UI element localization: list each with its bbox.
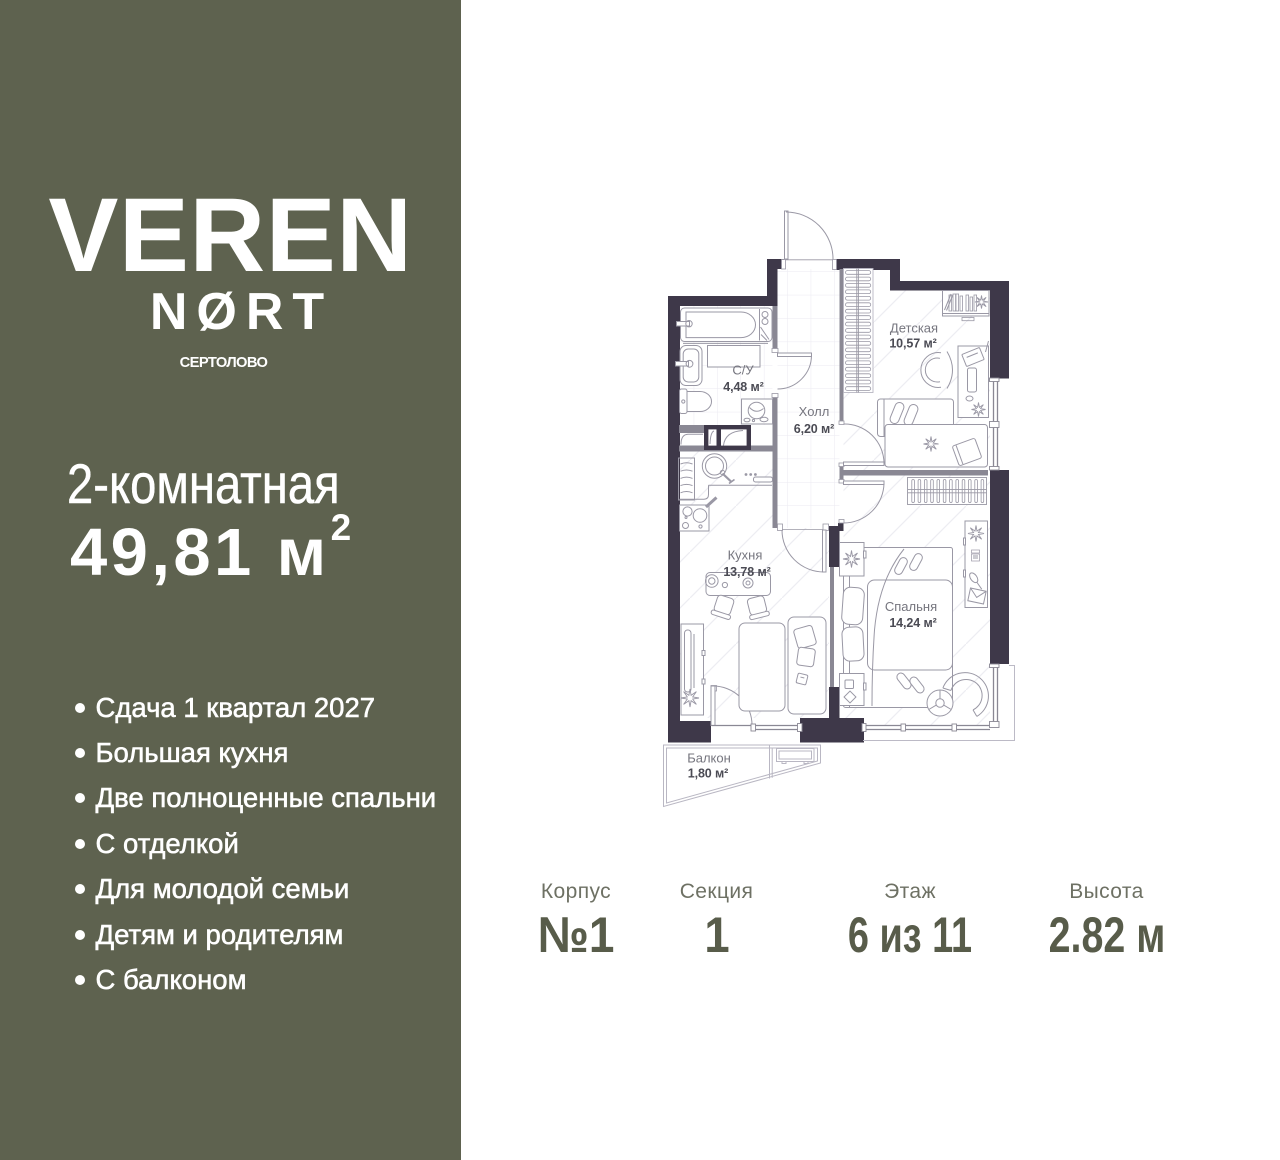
svg-text:10,57 м²: 10,57 м² — [889, 337, 936, 351]
svg-text:1,80 м²: 1,80 м² — [688, 767, 729, 781]
svg-text:Спальня: Спальня — [885, 599, 937, 614]
svg-text:6,20 м²: 6,20 м² — [794, 422, 835, 436]
svg-text:С/У: С/У — [732, 363, 754, 378]
svg-text:Балкон: Балкон — [687, 751, 731, 766]
svg-text:4,48 м²: 4,48 м² — [723, 380, 764, 394]
svg-text:Холл: Холл — [799, 404, 830, 419]
svg-text:Детская: Детская — [890, 321, 938, 336]
svg-text:Кухня: Кухня — [728, 548, 763, 563]
svg-text:14,24 м²: 14,24 м² — [889, 616, 936, 630]
svg-text:13,78 м²: 13,78 м² — [723, 565, 770, 579]
